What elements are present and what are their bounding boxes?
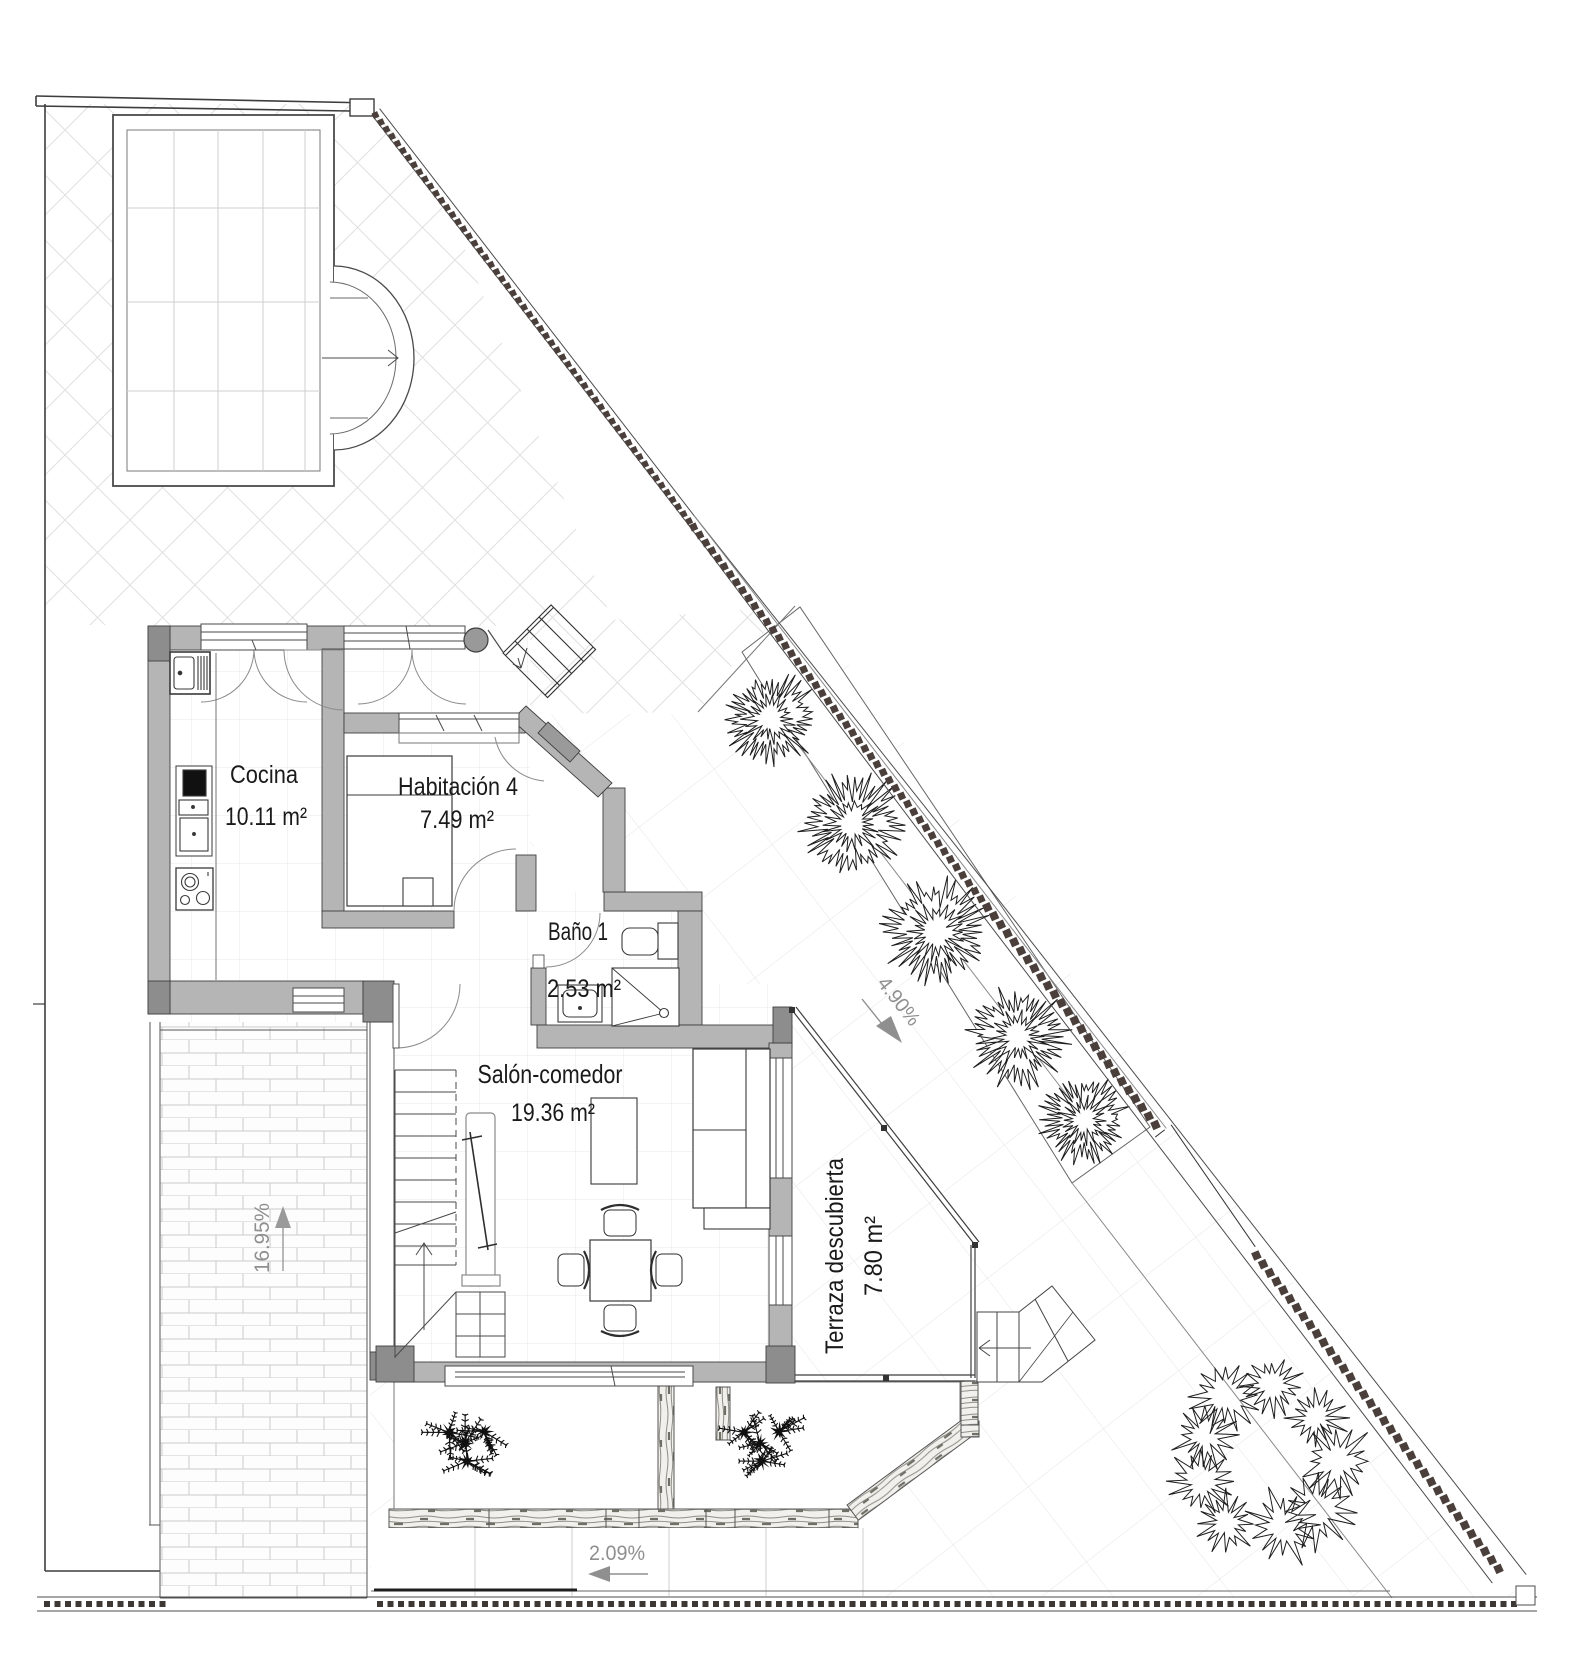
svg-text:Baño 1: Baño 1 <box>548 918 608 946</box>
svg-text:2.09%: 2.09% <box>589 1542 645 1565</box>
svg-text:Habitación 4: Habitación 4 <box>398 773 518 801</box>
svg-text:10.11 m²: 10.11 m² <box>225 803 307 831</box>
svg-text:Cocina: Cocina <box>230 761 298 789</box>
svg-text:Terraza descubierta: Terraza descubierta <box>821 1158 849 1354</box>
svg-text:7.80 m²: 7.80 m² <box>860 1216 888 1296</box>
svg-text:16.95%: 16.95% <box>251 1203 274 1273</box>
svg-text:Salón-comedor: Salón-comedor <box>478 1059 623 1089</box>
svg-text:7.49 m²: 7.49 m² <box>420 806 494 834</box>
svg-text:19.36 m²: 19.36 m² <box>511 1099 595 1127</box>
svg-text:2.53 m²: 2.53 m² <box>547 975 621 1003</box>
